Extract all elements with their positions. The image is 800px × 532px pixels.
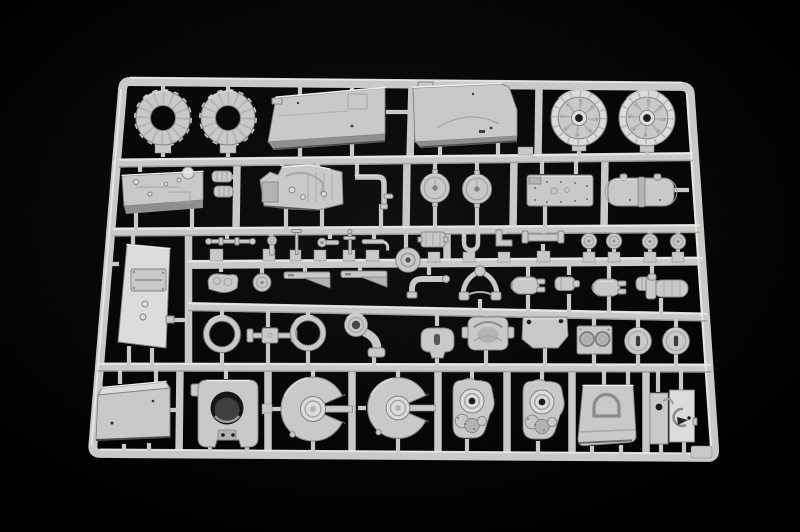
- part-slotted-hub-2: [663, 328, 690, 355]
- part-engine-deck-panel: [413, 82, 517, 148]
- part-hub-cap-3: [642, 234, 657, 249]
- part-hub-cap-a: [253, 274, 271, 292]
- part-stowage-box: [96, 381, 170, 440]
- sprue-photo: [0, 0, 800, 532]
- part-hub-cap-4: [670, 234, 685, 249]
- part-arched-cover-plate: [578, 385, 636, 446]
- part-slotted-hub-1: [625, 328, 652, 355]
- part-road-wheel-2: [619, 90, 675, 146]
- part-hub-cap-2: [606, 233, 621, 248]
- part-instrument-panel: [577, 326, 612, 354]
- sprue-rail-d: [98, 367, 712, 368]
- part-hull-roof-panel: [268, 87, 385, 150]
- photo-canvas: [0, 0, 800, 532]
- part-cable-spool: [418, 232, 448, 247]
- part-hinged-plates: [650, 390, 697, 444]
- part-mounting-plate: [522, 317, 568, 348]
- part-gearbox-housing: [122, 167, 203, 214]
- part-gun-cradle: [462, 317, 514, 350]
- part-muffler: [605, 174, 677, 207]
- corner-tab: [691, 446, 712, 458]
- part-hub-cap-1: [581, 233, 596, 248]
- part-road-wheel-1: [551, 90, 607, 146]
- part-compressor: [208, 274, 238, 293]
- part-junction-hub-cap: [396, 248, 420, 272]
- part-trunnion-mount: [191, 380, 258, 447]
- part-rear-door: [118, 244, 174, 348]
- part-bolted-plate: [527, 175, 593, 206]
